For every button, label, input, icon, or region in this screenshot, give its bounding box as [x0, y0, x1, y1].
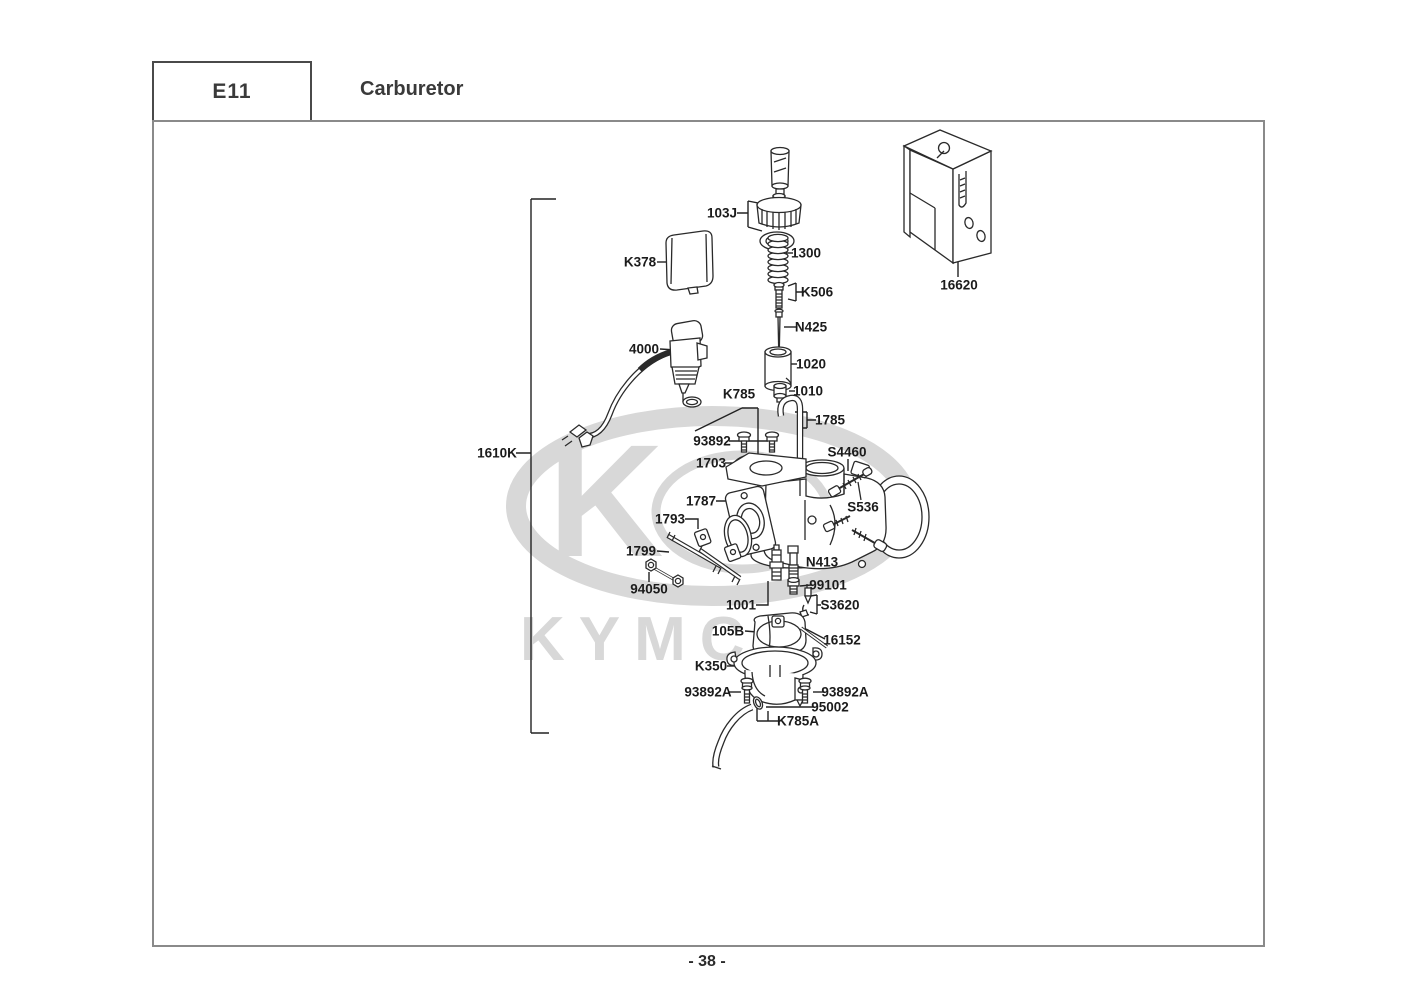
part-label-K785: K785	[723, 387, 755, 402]
part-label-K506: K506	[801, 285, 833, 300]
part-label-N425: N425	[795, 320, 827, 335]
part-label-1010: 1010	[793, 384, 823, 399]
part-label-4000: 4000	[629, 342, 659, 357]
part-label-103J: 103J	[707, 206, 737, 221]
bracket-16620-drawing	[904, 130, 991, 263]
main-jet-drawing	[788, 546, 798, 578]
rubber-boot-drawing	[666, 231, 713, 294]
needle-jet-drawing	[770, 545, 783, 580]
part-label-K350: K350	[695, 659, 727, 674]
cable-adjuster-drawing	[771, 148, 789, 195]
slow-jet-drawing	[788, 578, 799, 594]
screw-set-drawing	[774, 283, 784, 309]
part-label-S536: S536	[847, 500, 879, 515]
part-label-1799: 1799	[626, 544, 656, 559]
throttle-cap-drawing	[757, 194, 801, 231]
part-label-93892: 93892	[693, 434, 731, 449]
part-label-1001: 1001	[726, 598, 756, 613]
part-label-N413: N413	[806, 555, 838, 570]
part-label-99101: 99101	[809, 578, 847, 593]
part-label-S4460: S4460	[827, 445, 866, 460]
part-label-93892A-left: 93892A	[684, 685, 731, 700]
part-label-S3620: S3620	[820, 598, 859, 613]
part-label-1785: 1785	[815, 413, 845, 428]
starter-oring-drawing	[683, 397, 701, 407]
assembly-label-1610K: 1610K	[477, 446, 517, 461]
part-label-1793: 1793	[655, 512, 685, 527]
part-label-1787: 1787	[686, 494, 716, 509]
drain-tube-drawing	[712, 707, 752, 769]
part-label-1703: 1703	[696, 456, 726, 471]
page-number: - 38 -	[688, 953, 725, 971]
part-label-16620: 16620	[940, 278, 978, 293]
part-label-93892A-right: 93892A	[821, 685, 868, 700]
spring-drawing	[768, 234, 788, 283]
part-label-16152: 16152	[823, 633, 861, 648]
part-label-105B: 105B	[712, 624, 744, 639]
part-label-1020: 1020	[796, 357, 826, 372]
part-label-1300: 1300	[791, 246, 821, 261]
part-label-K785A: K785A	[777, 714, 819, 729]
part-label-95002: 95002	[811, 700, 849, 715]
catalog-page: E11 Carburetor K KYMCO	[0, 0, 1415, 1000]
part-label-K378: K378	[624, 255, 656, 270]
jet-needle-drawing	[775, 309, 783, 350]
part-label-94050: 94050	[630, 582, 668, 597]
